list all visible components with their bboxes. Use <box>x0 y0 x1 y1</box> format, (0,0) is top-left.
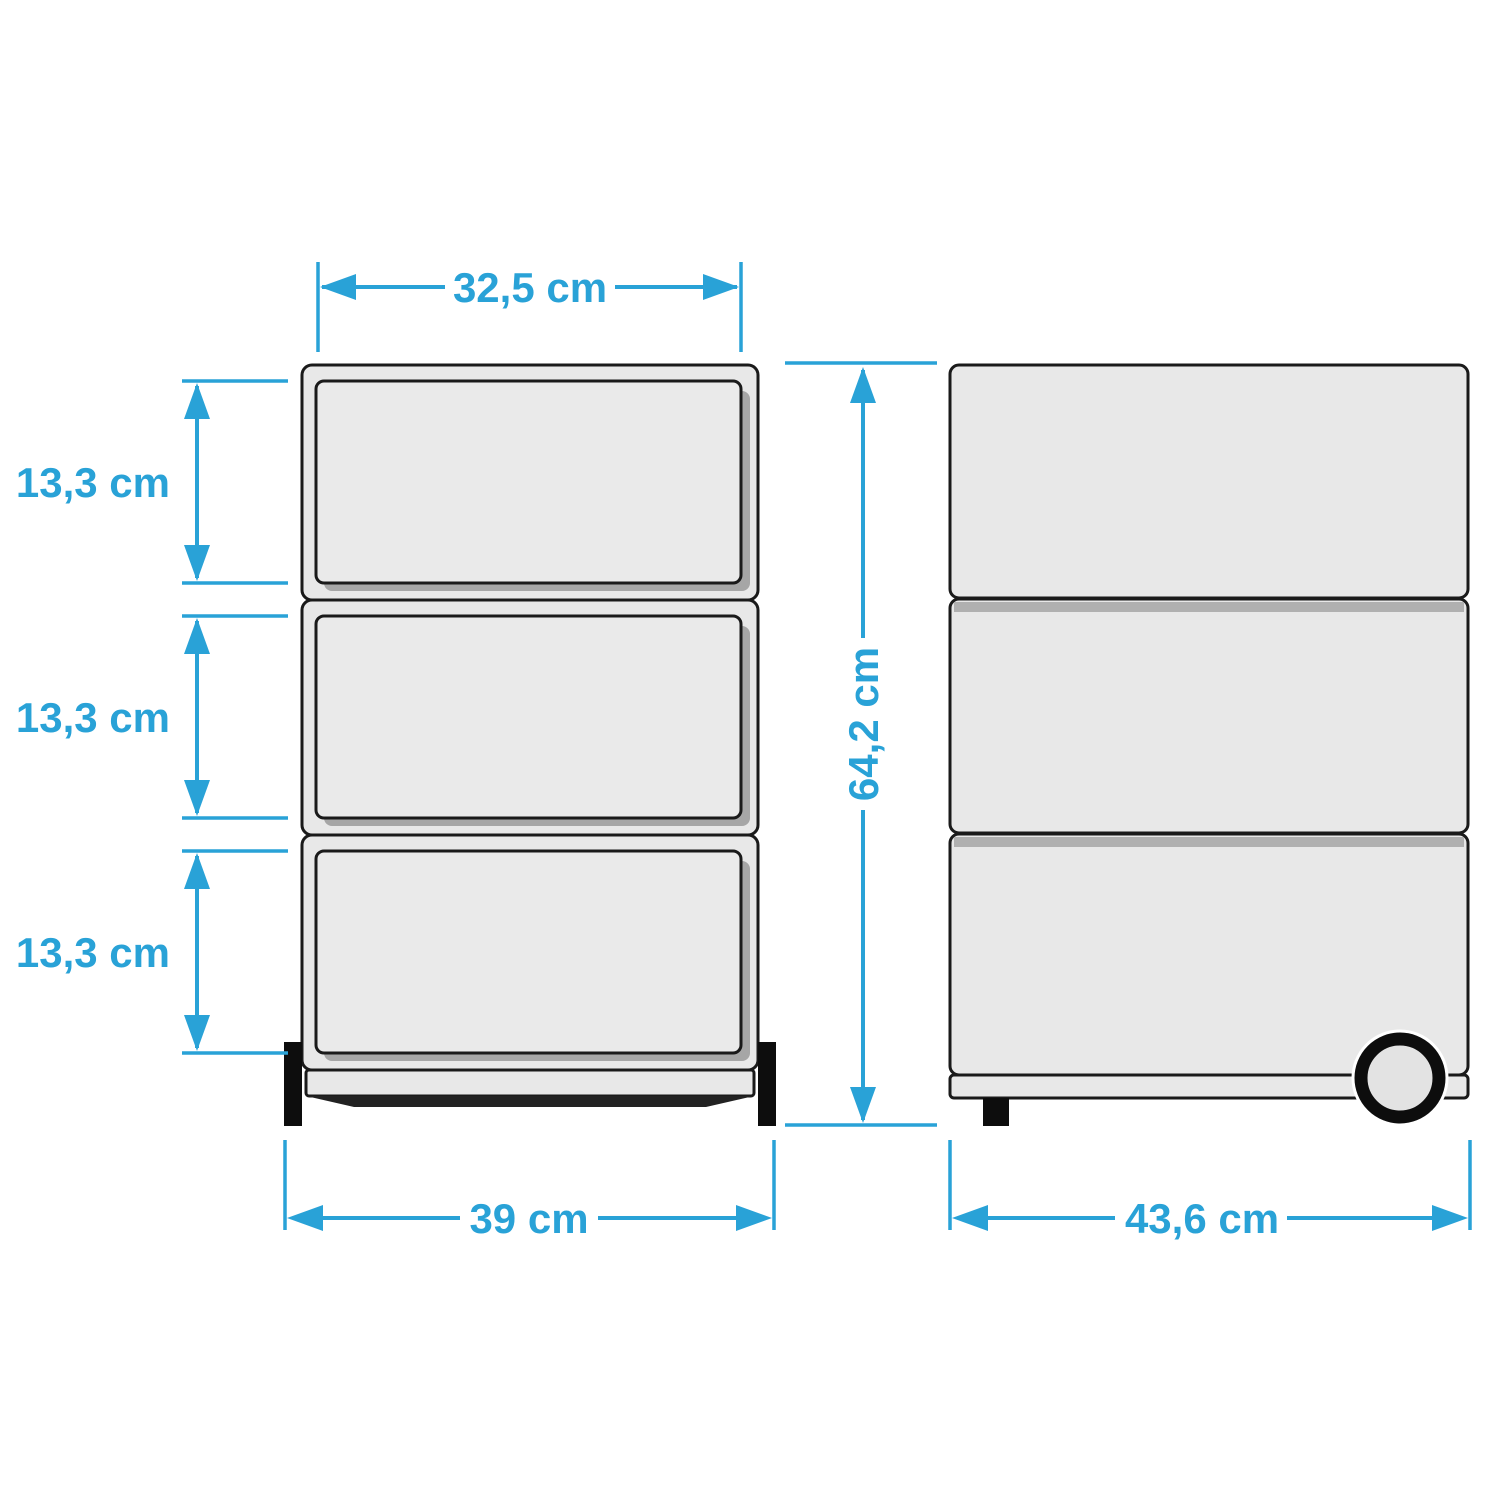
side-section-1 <box>950 365 1468 598</box>
drawer-front <box>316 381 741 583</box>
arrow-down-icon <box>184 1015 210 1051</box>
arrow-right-icon <box>703 274 739 300</box>
arrow-up-icon <box>850 367 876 403</box>
front-view <box>284 365 776 1126</box>
section-panel <box>950 599 1468 833</box>
side-view <box>950 365 1468 1126</box>
front-underside-shadow <box>306 1096 754 1107</box>
dim-drawer-height-2-label: 13,3 cm <box>16 694 170 741</box>
section-divider-shadow <box>954 602 1464 612</box>
side-section-2 <box>950 599 1468 833</box>
arrow-up-icon <box>184 618 210 654</box>
arrow-right-icon <box>736 1205 772 1231</box>
dim-overall-height: 64,2 cm <box>785 363 937 1125</box>
drawer-module-3 <box>302 835 758 1070</box>
arrow-left-icon <box>287 1205 323 1231</box>
dim-drawer-height-3-label: 13,3 cm <box>16 929 170 976</box>
arrow-down-icon <box>184 780 210 816</box>
dimension-drawing: 32,5 cm 13,3 cm 13,3 cm 13,3 cm 39 cm <box>0 0 1500 1500</box>
arrow-right-icon <box>1432 1205 1468 1231</box>
drawing-canvas: 32,5 cm 13,3 cm 13,3 cm 13,3 cm 39 cm <box>0 0 1500 1500</box>
dim-drawer-height-1-label: 13,3 cm <box>16 459 170 506</box>
dim-overall-width: 39 cm <box>285 1140 774 1242</box>
dim-overall-depth-label: 43,6 cm <box>1125 1195 1279 1242</box>
dim-overall-width-label: 39 cm <box>469 1195 588 1242</box>
wheel-icon <box>1361 1039 1439 1117</box>
arrow-down-icon <box>850 1087 876 1123</box>
dim-drawer-width: 32,5 cm <box>318 262 741 352</box>
drawer-module-2 <box>302 600 758 835</box>
arrow-left-icon <box>952 1205 988 1231</box>
dim-overall-depth: 43,6 cm <box>950 1140 1470 1242</box>
front-plinth <box>306 1070 754 1096</box>
dim-overall-height-label: 64,2 cm <box>840 647 887 801</box>
section-panel <box>950 365 1468 598</box>
drawer-front <box>316 616 741 818</box>
drawer-module-1 <box>302 365 758 600</box>
arrow-left-icon <box>320 274 356 300</box>
arrow-up-icon <box>184 853 210 889</box>
section-divider-shadow <box>954 837 1464 847</box>
front-foot-right <box>758 1042 776 1126</box>
dim-drawer-width-label: 32,5 cm <box>453 264 607 311</box>
dim-drawer-height-2: 13,3 cm <box>16 616 288 818</box>
side-foot <box>983 1098 1009 1126</box>
dim-drawer-height-1: 13,3 cm <box>16 381 288 583</box>
caster-wheel <box>1361 1039 1439 1117</box>
dim-drawer-height-3: 13,3 cm <box>16 851 288 1053</box>
drawer-front <box>316 851 741 1053</box>
arrow-up-icon <box>184 383 210 419</box>
arrow-down-icon <box>184 545 210 581</box>
